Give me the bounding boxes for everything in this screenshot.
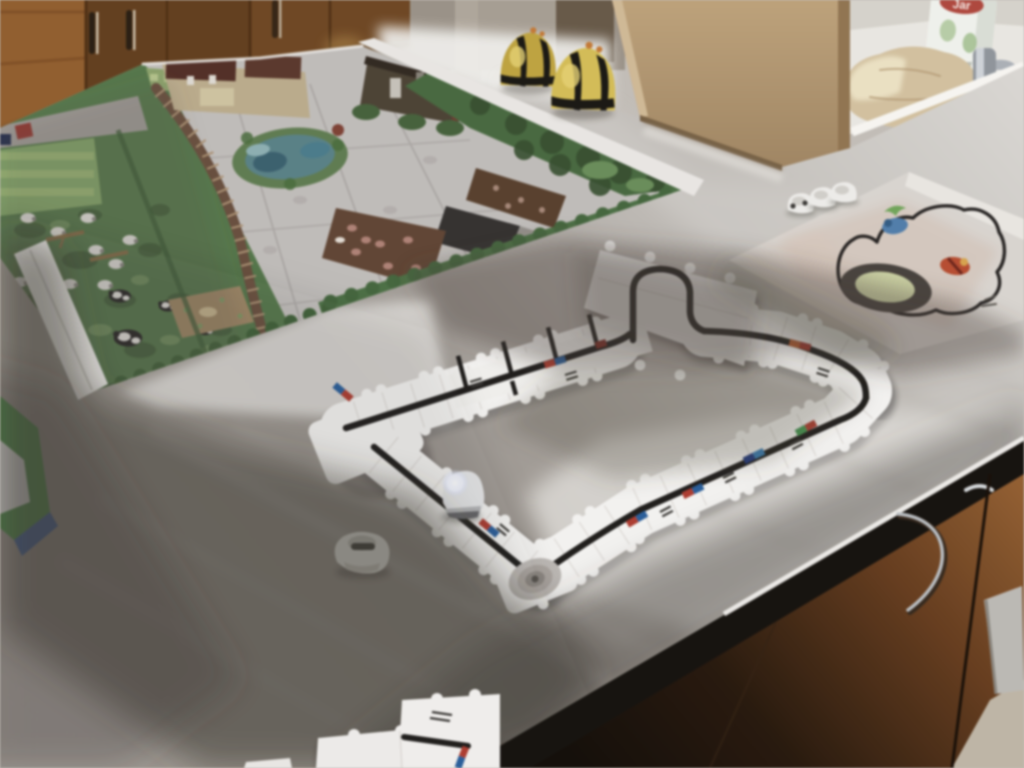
svg-text:Jar: Jar [952,0,972,13]
